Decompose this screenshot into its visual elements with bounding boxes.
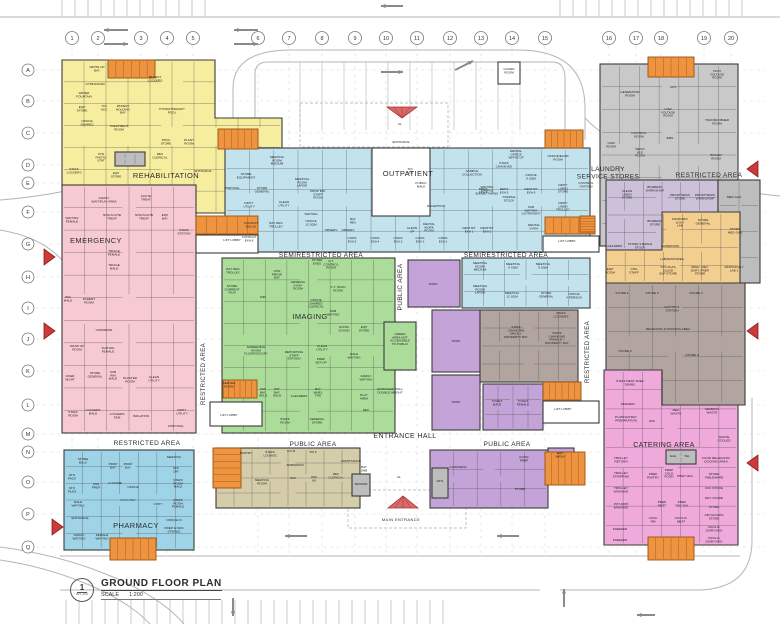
grid-row-label: O xyxy=(26,480,31,486)
room-label: TROLLEYWASHING xyxy=(614,486,629,493)
area-label: SEMIRESTRICTED AREA xyxy=(464,252,548,259)
room-label: BMS xyxy=(667,136,674,140)
section-marker-icon xyxy=(747,323,758,339)
room-label: BOILERROOM xyxy=(710,153,722,160)
room-label: DISPOSAL xyxy=(168,424,184,428)
room-label: CLEANUTILITY xyxy=(316,344,328,351)
grid-row-label: L xyxy=(26,403,29,409)
section-marker-icon xyxy=(747,161,758,177)
grid-column-label: 12 xyxy=(447,36,453,42)
room-label: ULTRASOUND xyxy=(338,325,350,332)
room-label: LIFT LOBBY xyxy=(554,407,571,411)
room-label: STOREEXES xyxy=(312,258,323,265)
room-label: PLANTROOM xyxy=(184,138,194,145)
area-label: CATERING AREA xyxy=(633,442,694,449)
room-label: PANTRY xyxy=(240,451,252,455)
room-label: BAYSNB xyxy=(361,465,367,472)
grid-column-label: 8 xyxy=(320,36,323,42)
room-label: PARENTROOM xyxy=(83,297,95,304)
room-label: UPS xyxy=(670,85,676,89)
title-text-group: GROUND FLOOR PLAN SCALE1:200 xyxy=(101,578,222,600)
room-label: OVERNIGHT xyxy=(65,374,75,381)
room-label: TRIAGEMALE xyxy=(108,263,120,270)
room-label: CLEANLINENSTORE xyxy=(622,189,633,200)
grid-column-label: 6 xyxy=(256,36,259,42)
room-label: ASSPREP xyxy=(92,482,100,489)
room-label: SERVERY xyxy=(621,402,636,406)
room-label: CLEANUTILITY xyxy=(148,375,160,382)
room-label: OFFICE9 SQM xyxy=(525,173,536,180)
room-label: FOOD RECEIVING/DOCKING AREA xyxy=(702,456,730,463)
room-label: POT-DISHWASHING xyxy=(614,502,629,509)
grid-column-label: 14 xyxy=(509,36,515,42)
room-label: STAFFROOM xyxy=(280,417,290,424)
area-label: PUBLIC AREA xyxy=(483,441,530,448)
room-label: OFF xyxy=(290,476,296,480)
room-label: OFFICE IN xyxy=(166,518,181,522)
room-label: REC xyxy=(363,408,370,412)
room-label: TOI F xyxy=(309,450,317,454)
grid-column-label: 15 xyxy=(542,36,548,42)
grid-row-label: H xyxy=(26,275,30,281)
room-label: FREEZER xyxy=(613,527,628,531)
room-label: DAY STORE xyxy=(705,486,723,490)
room-label: WHL xyxy=(437,479,444,483)
room-label: PATIENTLOCKERS xyxy=(148,75,163,82)
room-label: BIOMEDICWORKSHOP xyxy=(646,185,664,192)
room-label: PREPMEAT xyxy=(658,500,667,507)
grid-row-label: P xyxy=(26,512,30,518)
area-label: REHABILITATION xyxy=(133,171,199,180)
room-label: CONSEXA 1 xyxy=(439,236,448,243)
room-label: OBSERV xyxy=(325,228,339,232)
room-label: BAY RESTROLLEY xyxy=(226,267,240,274)
room-label: STAFFROOM xyxy=(68,410,78,417)
room-label: PLATING/TRAYPREPARATION xyxy=(615,415,637,422)
room-label: BAY RESTROLLEY xyxy=(269,221,283,228)
room-label: TOILETFEMALE xyxy=(517,399,529,406)
room-label: MED GAS xyxy=(727,195,741,199)
room-label: SUB WAIFEMALE xyxy=(102,346,115,353)
area-label: EMERGENCY xyxy=(70,236,122,245)
room-label: CONTROLSTATION xyxy=(664,305,679,312)
grid-column-label: 16 xyxy=(606,36,612,42)
grid-column-label: 13 xyxy=(478,36,484,42)
room-label: TOILETMALE xyxy=(492,399,503,406)
room-label: AL xyxy=(397,475,401,479)
room-label: PREPCOLDFOOD xyxy=(665,468,675,479)
room-label: TROLLEYSTRIPPING xyxy=(613,471,630,478)
room-label: MEETING12 SQM xyxy=(505,291,520,298)
grid-column-label: 3 xyxy=(139,36,142,42)
room-label: EQPWASH xyxy=(555,451,564,458)
room-label: STAFFROOMMALE xyxy=(173,478,183,489)
room-label: DRY STORE xyxy=(705,496,723,500)
room-label: ENTRANCE HALLDOUBLE HEIGHT xyxy=(377,387,403,394)
grid-row-label: N xyxy=(26,450,30,456)
area-label: RESTRICTED AREA xyxy=(585,321,591,383)
room-label: FEMALEWAITING xyxy=(95,533,109,540)
room-label: CLEANUTILITY xyxy=(278,200,290,207)
room-label: DISPOSAL xyxy=(224,186,240,190)
room-label: COPY xyxy=(154,502,163,506)
room-label: ACUTETREAT xyxy=(141,194,152,201)
room-label: WAITINGFEMALE xyxy=(65,216,79,223)
area-label: SEMIRESTRICTED AREA xyxy=(279,252,363,259)
room-label: CLEANERS xyxy=(291,394,308,398)
room-label: CLEANERS xyxy=(606,244,623,248)
room-label: STORE xyxy=(709,505,720,509)
room-label: CONSEXA 5 xyxy=(348,236,357,243)
room-label: LIFT LOBBY xyxy=(220,413,237,417)
room-label: FREEZER xyxy=(613,538,628,542)
room-label: MRI xyxy=(260,295,266,299)
room-label: STOREBULK xyxy=(78,457,89,464)
room-label: STERILESTOCK xyxy=(503,195,516,202)
area-label: RESTRICTED AREA xyxy=(201,343,207,405)
area-label: RESTRICTED AREA xyxy=(676,172,743,179)
room-label: TEL xyxy=(684,454,690,458)
room-label: RECEIVING & DOCKING AREA xyxy=(646,327,691,331)
room-label: DENTALWORKROOM xyxy=(423,222,435,233)
room-label: WASTECOOLED xyxy=(717,435,731,442)
room-label: MEETING xyxy=(167,455,182,459)
room-label: OFFICE4 PERSON xyxy=(566,292,582,299)
room-label: ISOLATION xyxy=(133,414,149,418)
road xyxy=(233,50,585,140)
room-label: OFFICE12 SQM xyxy=(305,219,317,226)
room-label: GYMNASIUM xyxy=(85,82,105,86)
room-label: OFF xyxy=(649,419,655,423)
grid-column-label: 18 xyxy=(658,36,664,42)
room-label: CONSEXA 2 xyxy=(416,236,425,243)
section-marker-icon xyxy=(44,323,55,339)
room-label: CHGSTAFF xyxy=(629,267,639,274)
scale-value: 1:200 xyxy=(129,592,143,598)
room-label: SHOP xyxy=(452,400,461,404)
room-label: ENTRANCE xyxy=(392,140,409,144)
room-label: STAFFLOUNGE xyxy=(263,450,276,457)
room-label: DIRTYUTILITY xyxy=(176,408,188,415)
grid-column-label: 1 xyxy=(70,36,73,42)
grid-column-label: 17 xyxy=(633,36,639,42)
room-label: OBSERV xyxy=(342,228,356,232)
sheet-reference: AR-100 xyxy=(76,593,88,597)
room-label: WAITING xyxy=(304,212,318,216)
room-label: DIRTYLINENSTORE xyxy=(558,183,569,194)
grid-column-label: 10 xyxy=(383,36,389,42)
grid-column-label: 9 xyxy=(353,36,356,42)
area-label: ENTRANCE HALL xyxy=(373,433,436,440)
room-label: STORE 3 xyxy=(689,291,702,295)
area-label: RESTRICTED AREA xyxy=(114,440,181,447)
grid-row-label: E xyxy=(26,181,30,187)
grid-column-label: 19 xyxy=(701,36,707,42)
room-label: TROLLEYRETURN xyxy=(614,456,628,463)
room-label: STORE xyxy=(515,487,526,491)
room-label: OFFICESHARED xyxy=(81,119,95,126)
room-label: CONSEXA 3 xyxy=(394,236,403,243)
area-label: OUTPATIENT xyxy=(383,169,433,178)
grid-row-label: Q xyxy=(26,545,31,551)
grid-row-label: A xyxy=(26,68,30,74)
room-label: DENTEXA 5 xyxy=(500,187,509,194)
title-block: 1 AR-100 GROUND FLOOR PLAN SCALE1:200 xyxy=(70,578,222,602)
room-label: DENTALX-RAY xyxy=(528,223,540,230)
room-label: STAFFROOMFEMALE xyxy=(172,498,184,509)
room-label: SHOP xyxy=(429,282,438,286)
room-label: STOREMED GAS xyxy=(728,227,742,234)
region-tel-ele xyxy=(115,152,145,166)
grid-row-label: G xyxy=(26,242,30,248)
room-label: CONSEXA 4 xyxy=(371,236,380,243)
room-label: DENTALOFFICEWRITE UP xyxy=(508,149,523,160)
room-label: FAMILYWAITING xyxy=(359,374,373,381)
room-label: GENERALWASTE xyxy=(705,407,720,414)
room-label: ADMITTANCE xyxy=(341,459,361,463)
area-label: IMAGING xyxy=(292,312,327,321)
grid-column-label: 20 xyxy=(728,36,734,42)
room-label: STORE 5 xyxy=(618,349,631,353)
room-label: TRIAGEFEMALE xyxy=(108,249,120,256)
room-label: PROSTHESISWORKSHOP xyxy=(695,193,715,200)
site-plan-svg: 1234567891011121314151617181920ABCDEFGHI… xyxy=(0,0,780,624)
detail-reference-bubble: 1 AR-100 xyxy=(70,578,94,602)
grid-column-label: 11 xyxy=(414,36,420,42)
room-label: CAFETERIA xyxy=(449,465,467,469)
room-label: AL xyxy=(398,122,402,126)
room-label: OFFICE xyxy=(127,485,138,489)
grid-row-label: J xyxy=(27,337,30,343)
room-label: EQPBAY xyxy=(162,213,169,220)
section-marker-icon xyxy=(52,519,63,535)
room-label: STORE 4 xyxy=(685,353,698,357)
grid-column-label: 4 xyxy=(165,36,168,42)
area-label: PHARMACY xyxy=(113,521,159,530)
room-label: STORE 2 xyxy=(645,291,658,295)
room-label: POOLSTORE xyxy=(161,138,172,145)
room-label: STOFILES xyxy=(68,486,77,493)
room-label: LIFT LOBBY xyxy=(223,238,240,242)
room-label: LABORATORIES xyxy=(660,257,684,261)
grid-row-label: K xyxy=(26,369,30,375)
room-label: SENSOR xyxy=(354,482,368,486)
grid-row-label: M xyxy=(26,432,31,438)
room-label: CORRIDOR xyxy=(96,328,114,332)
room-label: FOODPREP xyxy=(520,455,530,462)
region-green-courtyard xyxy=(384,322,416,370)
room-label: CONTROLSTATION xyxy=(578,181,593,188)
room-label: OFFDIR xyxy=(173,466,180,473)
grid-column-label: 2 xyxy=(96,36,99,42)
room-label: FAMILYWAITING xyxy=(72,533,86,540)
room-label: PREP VEG xyxy=(677,474,693,478)
floor-plan-canvas: 1234567891011121314151617181920ABCDEFGHI… xyxy=(0,0,780,624)
region-lift-lobby-se xyxy=(543,401,599,423)
room-label: PREPSET-UP xyxy=(315,357,326,364)
room-label: STORE 1 xyxy=(615,291,628,295)
room-label: TOI M xyxy=(287,449,296,453)
room-label: DENTEXA 4 xyxy=(479,187,488,194)
area-label: MAIN ENTRANCE xyxy=(382,517,420,522)
drawing-scale: SCALE1:200 xyxy=(101,591,221,600)
area-label: PUBLIC AREA xyxy=(397,263,404,310)
room-label: ENTRANCE xyxy=(71,516,88,520)
room-label: GUARDROOM xyxy=(503,67,515,74)
room-label: G STORE xyxy=(108,481,122,485)
grid-column-label: 5 xyxy=(191,36,194,42)
room-label: LIFT LOBBY xyxy=(558,239,575,243)
grid-row-label: B xyxy=(26,99,30,105)
room-label: COUNTER xyxy=(120,498,136,502)
area-label: PUBLIC AREA xyxy=(289,441,336,448)
room-label: SHOP xyxy=(452,339,461,343)
room-label: ANTEROOM xyxy=(661,244,679,248)
room-label: ADMISSION xyxy=(286,463,303,467)
grid-row-label: D xyxy=(26,163,30,169)
scale-label: SCALE xyxy=(101,592,119,598)
room-label: STAFFSTATION xyxy=(178,228,191,235)
grid-column-label: 7 xyxy=(287,36,290,42)
region-whl xyxy=(432,468,448,498)
room-label: ELE xyxy=(670,454,676,458)
room-label: RECEPTION xyxy=(427,204,445,208)
room-label: OFFICESHAREDCLERICAL xyxy=(308,298,323,309)
grid-row-label: C xyxy=(26,131,30,137)
room-label: PLAYAREA xyxy=(360,393,369,400)
room-label: DIRTYUTILITY xyxy=(243,201,255,208)
drawing-title: GROUND FLOOR PLAN xyxy=(101,578,222,591)
